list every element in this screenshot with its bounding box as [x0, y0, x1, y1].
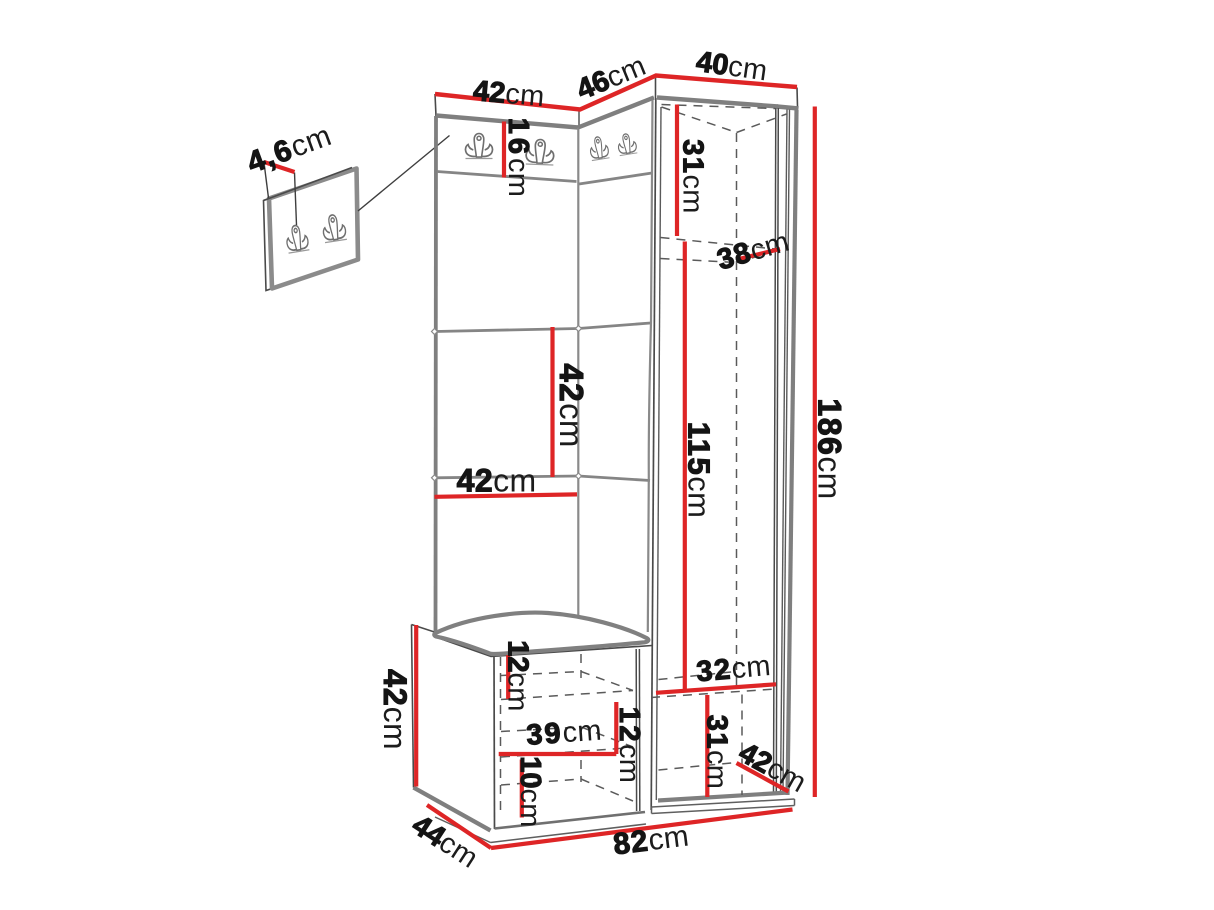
- svg-text:42cm: 42cm: [377, 669, 413, 750]
- svg-text:31cm: 31cm: [700, 715, 732, 790]
- svg-text:12cm: 12cm: [613, 707, 645, 784]
- svg-text:115cm: 115cm: [682, 422, 717, 518]
- svg-text:31cm: 31cm: [676, 139, 708, 214]
- svg-text:32cm: 32cm: [695, 650, 772, 688]
- svg-text:16cm: 16cm: [502, 118, 534, 198]
- svg-text:42cm: 42cm: [457, 463, 537, 499]
- svg-text:186cm: 186cm: [811, 398, 847, 499]
- svg-text:39cm: 39cm: [525, 715, 603, 752]
- svg-text:10cm: 10cm: [514, 756, 546, 828]
- svg-text:12cm: 12cm: [501, 640, 533, 712]
- svg-text:42cm: 42cm: [472, 75, 546, 113]
- svg-text:42cm: 42cm: [553, 363, 590, 447]
